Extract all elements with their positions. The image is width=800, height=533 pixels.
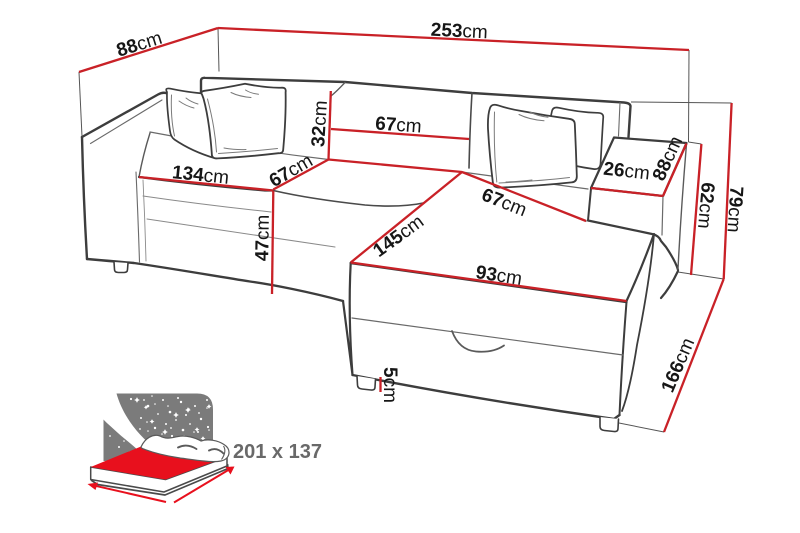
svg-text:67cm: 67cm bbox=[374, 113, 422, 137]
svg-text:201 x 137: 201 x 137 bbox=[233, 441, 322, 463]
svg-text:47cm: 47cm bbox=[252, 215, 274, 262]
svg-text:32cm: 32cm bbox=[308, 100, 332, 148]
svg-text:62cm: 62cm bbox=[693, 181, 718, 229]
svg-text:79cm: 79cm bbox=[723, 185, 747, 233]
svg-text:5cm: 5cm bbox=[379, 367, 400, 403]
svg-text:253cm: 253cm bbox=[430, 20, 488, 44]
